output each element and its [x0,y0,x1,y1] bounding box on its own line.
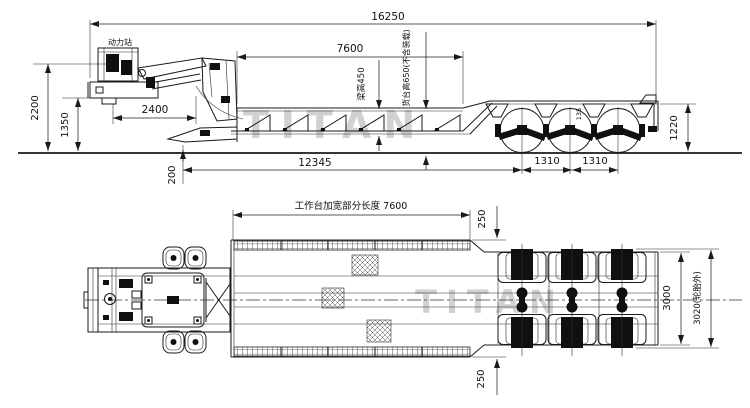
dim-lower-deck-group: 12345 1310 1310 [183,145,618,184]
dim-axle-spacing-1: 1310 [534,156,559,167]
dim-overall-length-group: 16250 [90,11,656,96]
antiskid-patch-1 [352,255,378,275]
dim-frame-width: 3000 [662,285,673,310]
dim-widening-bottom: 250 [476,369,487,388]
grating-strip-top [234,241,470,250]
grating-strip-bottom [234,347,470,356]
drawing-svg: TITAN 动力站 [0,0,750,408]
dim-overall-height: 2200 [30,95,41,120]
antiskid-patch-3 [367,320,391,342]
dim-nose-height-group: 200 [167,150,183,185]
dim-tire-width: 3020(轮胎外) [692,271,703,325]
dim-work-platform-length: 工作台加宽部分长度 7600 [295,200,408,212]
watermark-plan: TITAN [415,283,565,321]
dim-beam-height: 梁高450 [356,67,367,100]
dim-deck-length-group: 7600 [237,43,463,104]
dim-overall-height-group: 2200 [30,64,112,151]
dim-gooseneck-height-group: 1350 [60,98,98,151]
rear-bogie [495,107,645,174]
dim-gooseneck-length-group: 2400 [113,96,196,124]
dim-work-platform-group: 工作台加宽部分长度 7600 [233,200,470,240]
dim-gooseneck-height: 1350 [60,112,71,137]
dim-rear-height-group: 1220 [660,104,696,151]
dim-widening-bottom-group: 250 [472,345,506,395]
side-view: TITAN 动力站 [18,11,742,185]
power-station-label: 动力站 [108,37,132,47]
dim-widening-top-group: 250 [472,206,506,252]
dim-tire-width-group: 3020(轮胎外) [636,249,719,348]
dim-widening-top: 250 [477,209,488,228]
power-station: 动力站 [98,37,138,81]
dim-nose-height: 200 [167,165,178,184]
dim-overall-length: 16250 [371,11,404,23]
dim-deck-height: 货台高650(不含装载) [401,29,411,107]
front-ramp-nose [168,127,237,142]
dim-frame-width-group: 3000 [660,252,690,345]
dim-axle-detail: 135 [575,108,583,120]
dim-rear-height: 1220 [669,115,680,140]
dim-deck-height-group: 货台高650(不含装载) [401,29,426,170]
plan-view: TITAN [84,200,742,395]
dim-lower-deck-length: 12345 [298,157,331,169]
dim-deck-length: 7600 [337,43,364,55]
antiskid-patch-2 [322,288,344,308]
trailer-technical-drawing: TITAN 动力站 [0,0,750,408]
dim-gooseneck-length: 2400 [142,104,169,116]
dim-axle-spacing-2: 1310 [582,156,607,167]
watermark-side: TITAN [243,103,427,147]
